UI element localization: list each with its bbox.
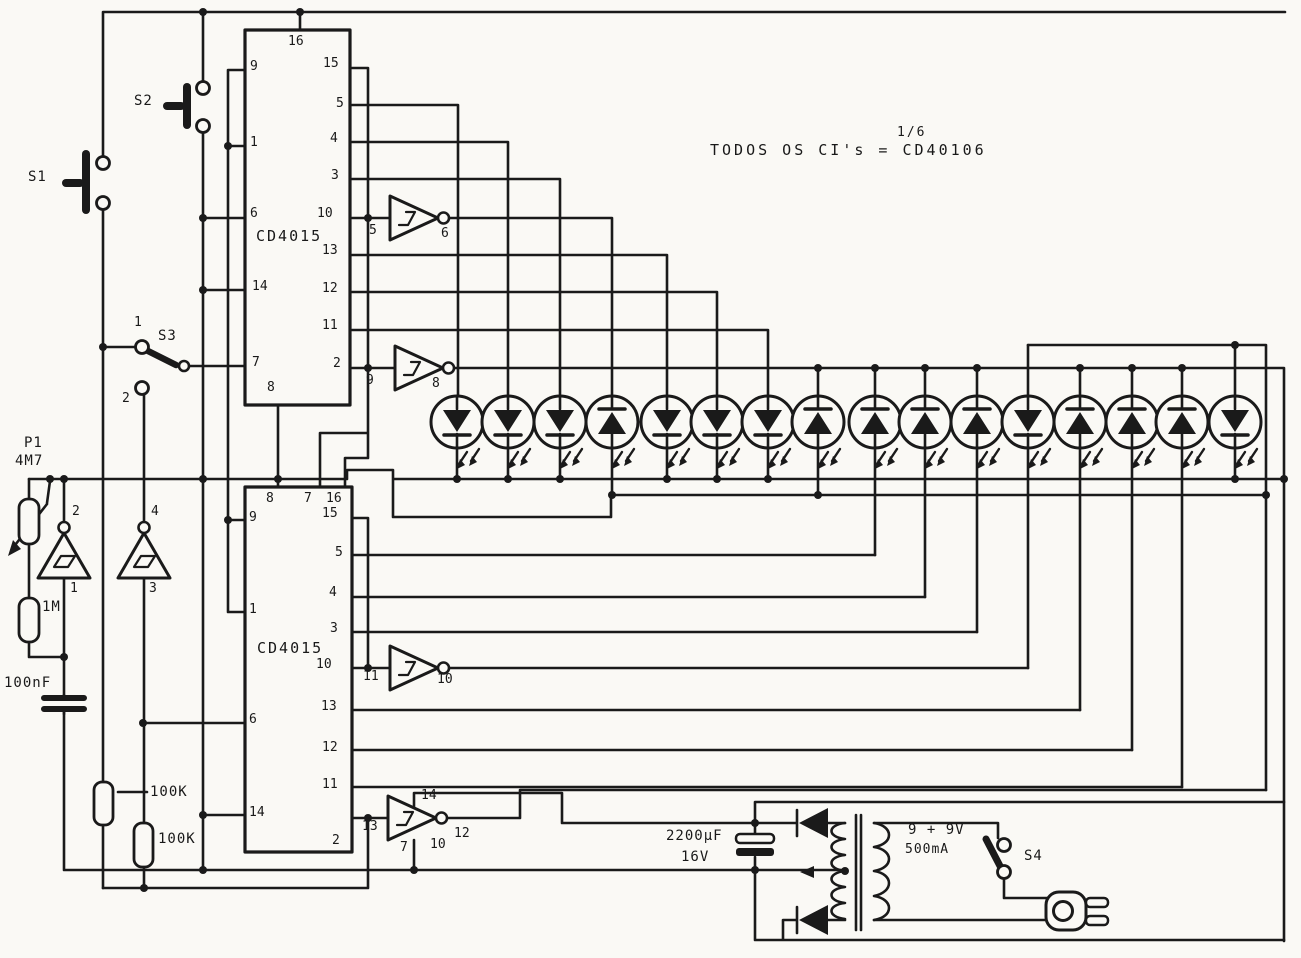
s3-lever [144, 349, 176, 365]
transformer-current-label: 500mA [905, 843, 949, 856]
note-fraction: 1/6 [897, 126, 926, 139]
ic2-pin8-label: 8 [266, 492, 274, 505]
ic2-pin11-label: 11 [322, 778, 338, 791]
capacitor-100nf-label: 100nF [4, 676, 51, 690]
resistor-100k-b-label: 100K [158, 832, 196, 846]
ic1-pin14-label: 14 [252, 280, 268, 293]
transformer-primary-coil [874, 823, 889, 920]
ic1-pin13-label: 13 [322, 244, 338, 257]
ic1-pin12-label: 12 [322, 282, 338, 295]
s3-label: S3 [158, 329, 177, 343]
pot-ref-label: P1 [24, 436, 43, 450]
ic2-name-label: CD4015 [257, 641, 323, 656]
ic2-pin7-label: 7 [304, 492, 312, 505]
ic1-box [245, 30, 350, 405]
led-row [431, 396, 1261, 469]
s4-label: S4 [1024, 849, 1043, 863]
gate2-output-label: 8 [432, 377, 440, 390]
ic2-pin14-label: 14 [249, 806, 265, 819]
gate6-input-label: 13 [362, 820, 378, 833]
ic2-pin9-label: 9 [249, 511, 257, 524]
ic2-box [245, 487, 352, 852]
ic2-pin16-label: 16 [326, 492, 342, 505]
s1-label: S1 [28, 170, 47, 184]
resistor-100k-b-body [134, 823, 153, 867]
ic2-pin3-label: 3 [330, 622, 338, 635]
ic1-pin2-label: 2 [333, 357, 341, 370]
ic1-pin16-label: 16 [288, 35, 304, 48]
resistor-100k-a-body [94, 782, 113, 825]
ic1-pin1-label: 1 [250, 136, 258, 149]
gate3-input-label: 1 [70, 582, 78, 595]
ic1-pin11-label: 11 [322, 319, 338, 332]
transformer-voltage-label: 9 + 9V [908, 823, 965, 837]
gate4-output-label: 4 [151, 505, 159, 518]
ic2-pin1-label: 1 [249, 603, 257, 616]
gate1-output-label: 6 [441, 227, 449, 240]
ic2-pin10-label: 10 [316, 658, 332, 671]
ic1-pin6-label: 6 [250, 207, 258, 220]
gate6-gnd-label: 7 [400, 841, 408, 854]
ic1-pin4-label: 4 [330, 132, 338, 145]
gate1-input-label: 5 [369, 224, 377, 237]
capacitor-2200uf-label: 2200µF [666, 829, 723, 843]
filter-cap-plate-bottom [736, 848, 774, 856]
resistor-1m-body [19, 598, 39, 642]
ic2-pin13-label: 13 [321, 700, 337, 713]
ic2-pin6-label: 6 [249, 713, 257, 726]
ic1-name-label: CD4015 [256, 229, 322, 244]
gate6-output-label: 10 [430, 838, 446, 851]
pot-value-label: 4M7 [15, 454, 43, 468]
wires-ic2-staircase [352, 518, 1182, 818]
gate3-output-label: 2 [72, 505, 80, 518]
gate5-triangle [390, 646, 438, 690]
gate4-input-label: 3 [149, 582, 157, 595]
ic2-pin5-label: 5 [335, 546, 343, 559]
ic2-pin4-label: 4 [329, 586, 337, 599]
s2-label: S2 [134, 94, 153, 108]
ic1-pin8-label: 8 [267, 381, 275, 394]
center-tap-arrow [800, 866, 814, 878]
gate1-triangle [390, 196, 438, 240]
ac-plug-icon [1046, 892, 1108, 930]
ic1-pin3-label: 3 [331, 169, 339, 182]
ic1-pin9-label: 9 [250, 60, 258, 73]
capacitor-100nf-plates [44, 698, 84, 709]
filter-cap-plate-top [736, 834, 774, 843]
ic2-pin15-label: 15 [322, 507, 338, 520]
gate6-node-label: 12 [454, 827, 470, 840]
potentiometer-body [19, 499, 39, 544]
pot-wiper-arrowhead [8, 540, 21, 556]
ic2-pin12-label: 12 [322, 741, 338, 754]
ic1-pin7-label: 7 [252, 356, 260, 369]
rectifier-diode-bottom [799, 905, 828, 935]
ic1-pin10-label: 10 [317, 207, 333, 220]
resistor-1m-label: 1M [42, 600, 61, 614]
note-text: TODOS OS CI's = CD40106 [710, 143, 987, 158]
capacitor-2200uf-voltage-label: 16V [681, 850, 709, 864]
ic2-pin2-label: 2 [332, 834, 340, 847]
gate5-output-label: 10 [437, 673, 453, 686]
circuit-drawing [0, 0, 1301, 958]
rectifier-diode-top [799, 808, 828, 838]
s3-contact-1-label: 1 [134, 316, 142, 329]
s3-contact-2-label: 2 [122, 392, 130, 405]
resistor-100k-a-label: 100K [150, 785, 188, 799]
schematic-page: S1 S2 S3 1 2 P1 4M7 1M 100nF 100K 100K C… [0, 0, 1301, 958]
ic1-pin15-label: 15 [323, 57, 339, 70]
gate5-input-label: 11 [363, 670, 379, 683]
gate2-input-label: 9 [366, 374, 374, 387]
ic1-pin5-label: 5 [336, 97, 344, 110]
gate6-vdd-label: 14 [421, 789, 437, 802]
